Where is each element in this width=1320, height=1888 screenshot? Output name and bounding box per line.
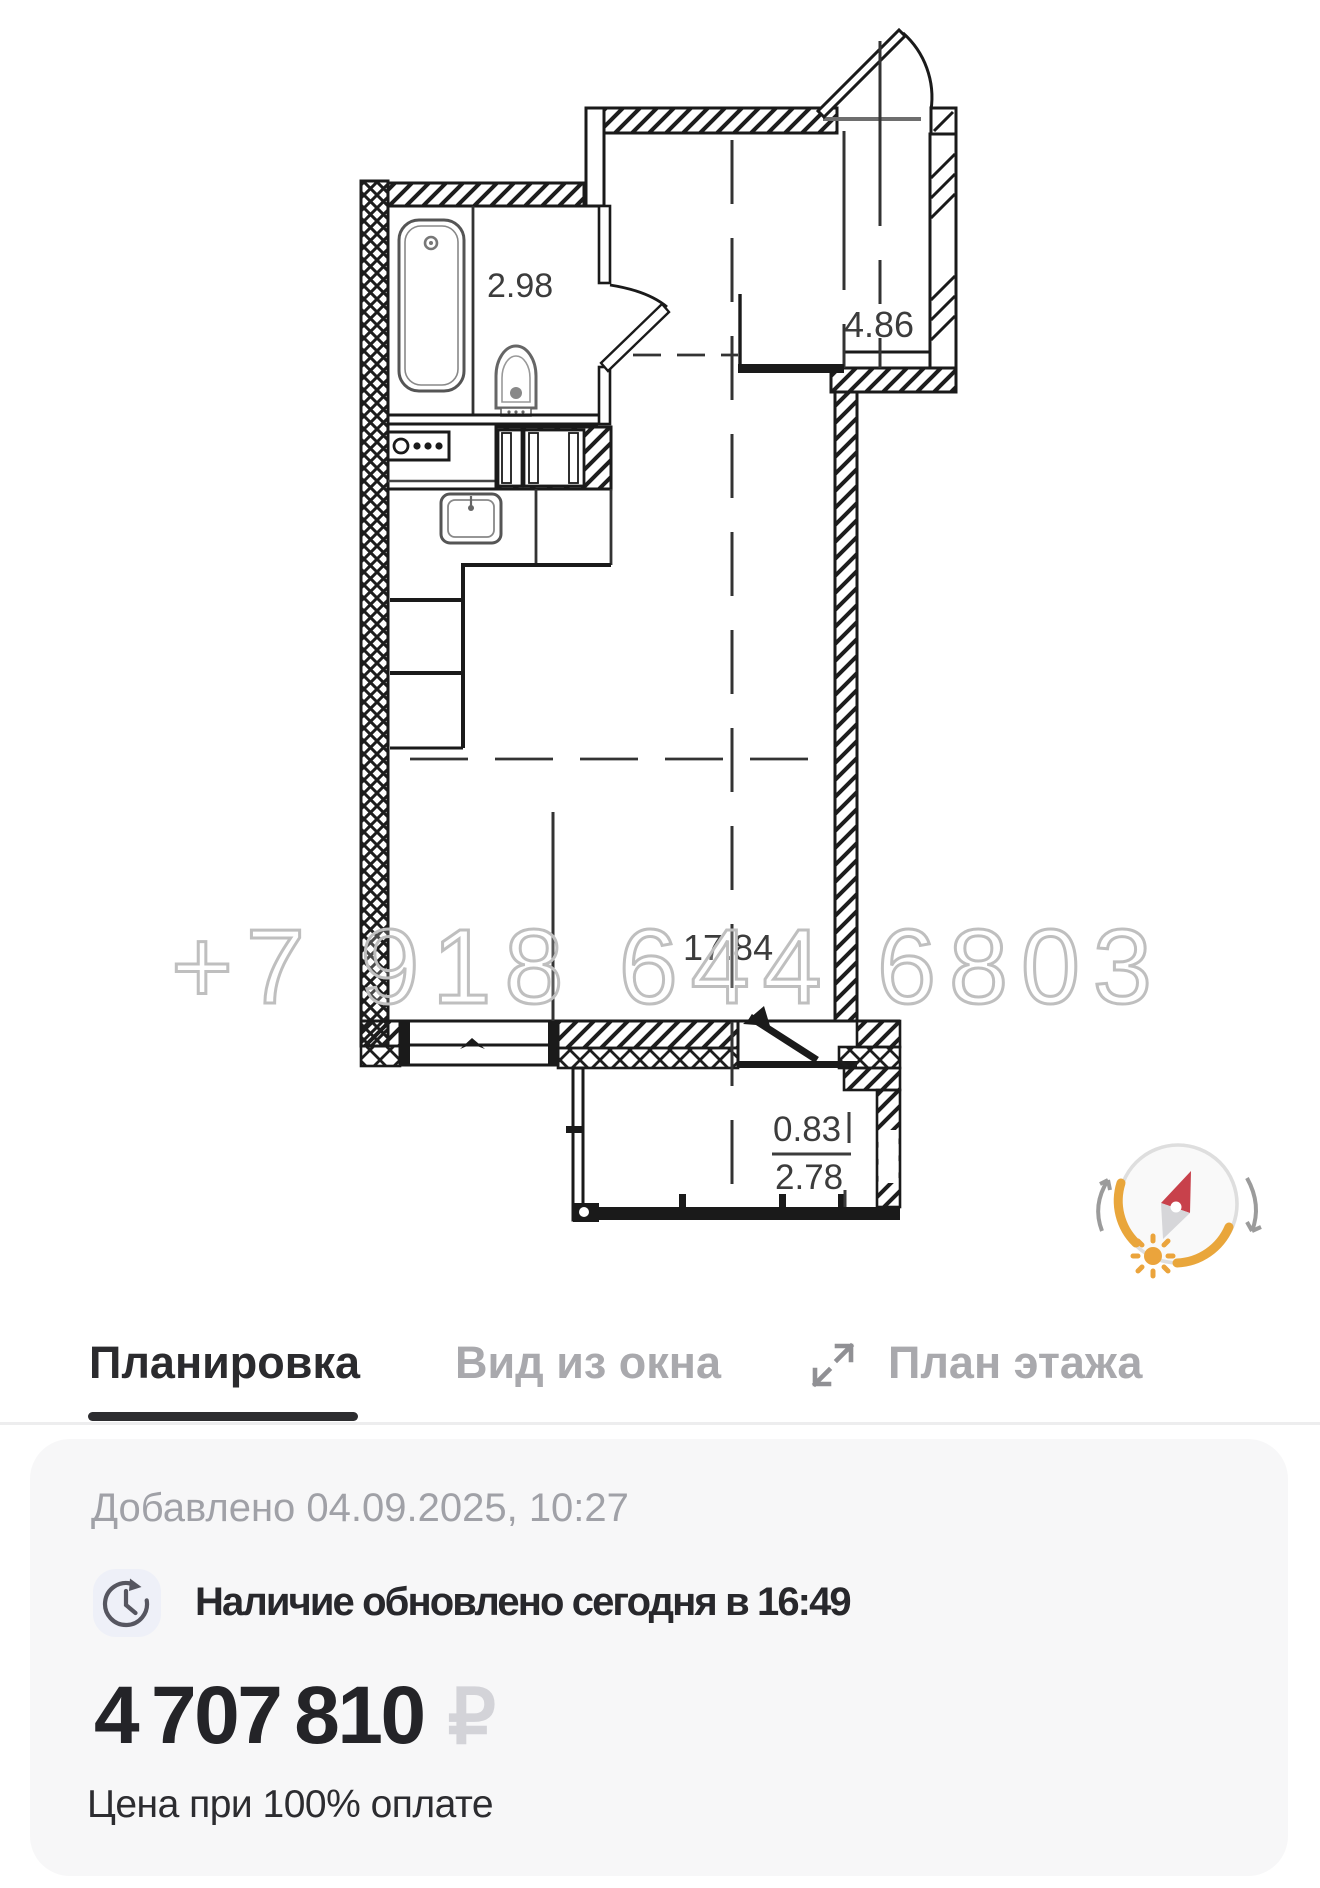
svg-text:2.98: 2.98 — [487, 267, 553, 305]
svg-text:4.86: 4.86 — [844, 304, 914, 345]
svg-text:+7 918 644 6803: +7 918 644 6803 — [171, 908, 1165, 1026]
svg-text:0.83: 0.83 — [773, 1110, 841, 1149]
svg-text:2.78: 2.78 — [775, 1158, 843, 1197]
